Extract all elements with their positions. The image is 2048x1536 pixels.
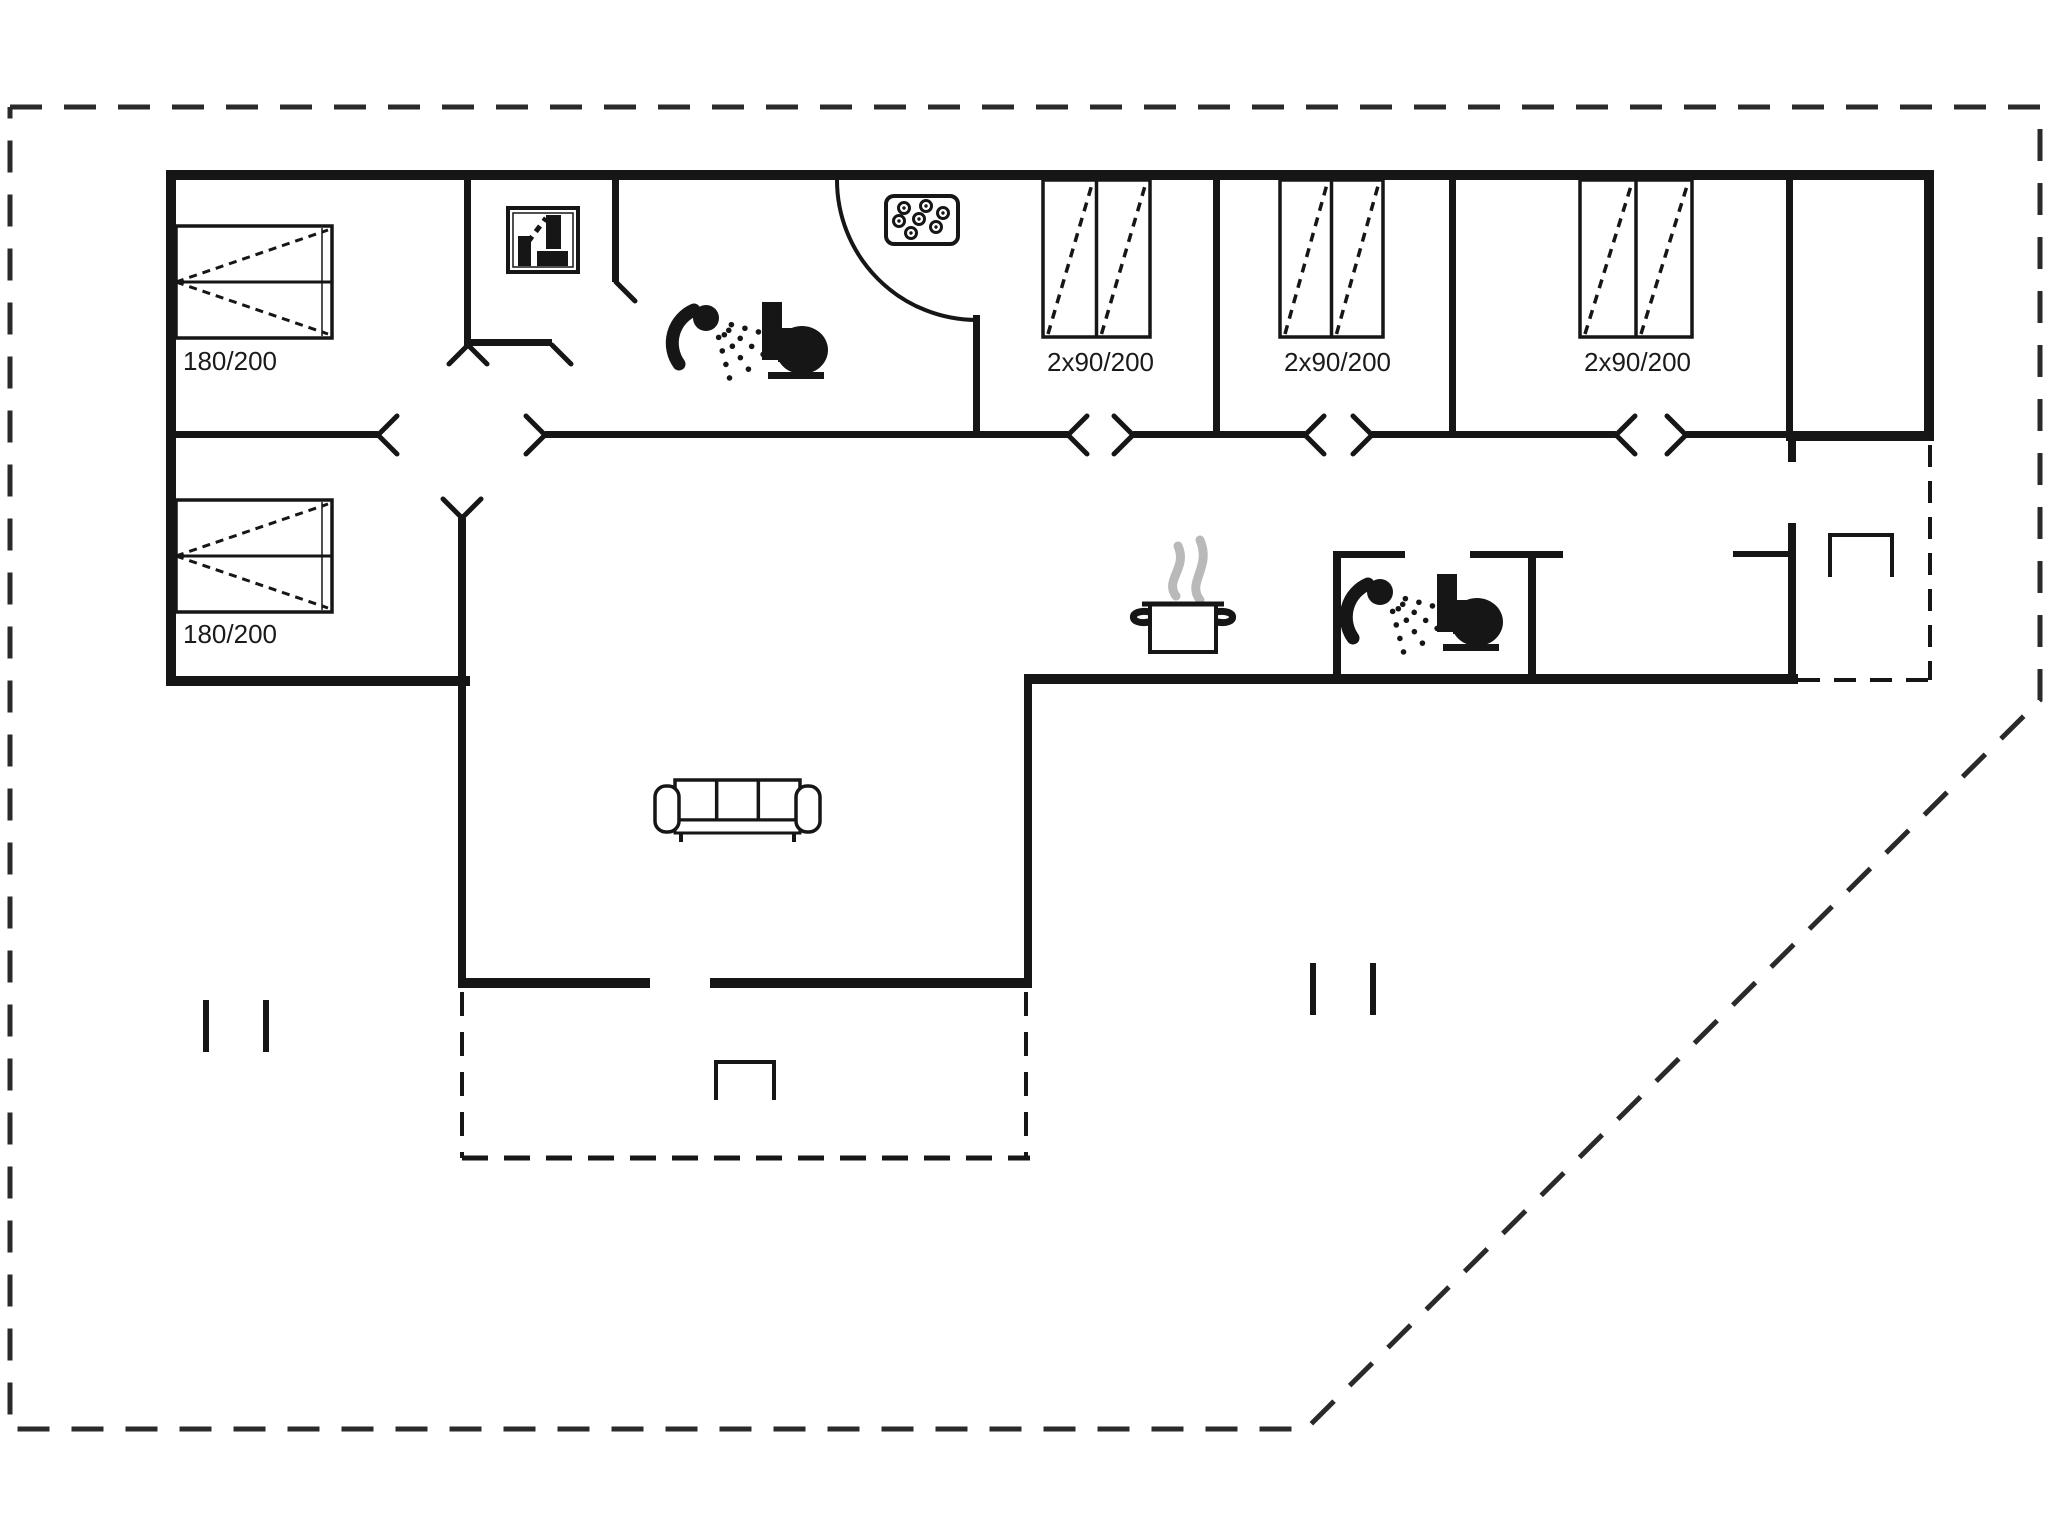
shower-spray-dot [716,335,722,341]
wall [1024,683,1032,988]
shower-spray-dot [1403,596,1409,602]
shower-spray-dot [1412,629,1418,635]
bed-diagonal [176,504,328,556]
door-opening-tick [462,499,481,518]
shower-spray-dot [730,343,736,349]
wall [710,978,1032,988]
shower-spray-dot [1396,606,1402,612]
door-opening-tick [1068,416,1087,435]
wall [1449,180,1456,438]
shower-head [1367,579,1393,605]
wardrobe-door-diagonal [1337,186,1379,334]
whirlpool-bubble-dot [897,219,900,222]
door-opening-tick [443,499,462,518]
shower-spray-dot [723,362,729,368]
wall [1786,180,1793,438]
shower-spray-dot [746,366,752,372]
cooking-pot-icon [1133,540,1232,652]
door-opening-tick [1667,435,1686,454]
sofa-arm [655,786,679,832]
shower-spray-dot [1420,640,1426,646]
shower-spray-dot [742,325,748,331]
wall [458,518,466,988]
washer-detail [528,218,546,242]
shower-spray-dot [1416,599,1422,605]
shower-spray-dot [726,328,732,334]
steam [1196,540,1204,600]
wardrobe-icon: 2x90/200 [1043,180,1154,377]
toilet-bowl [776,326,828,374]
door-opening-tick [449,345,468,364]
shower-icon [672,305,774,381]
door-opening-tick [526,416,545,435]
whirlpool-icon [886,196,958,244]
wall [1924,170,1934,441]
shower-spray-dot [1430,603,1436,609]
door-opening-tick [1667,416,1686,435]
whirlpool-bubble-dot [924,204,927,207]
step-symbol [716,1062,774,1100]
wall [1788,523,1796,684]
pot-handle [1133,611,1150,622]
wall [1133,431,1305,438]
bed-size-label: 180/200 [183,346,277,376]
door-opening-tick [526,435,545,454]
toilet-icon [762,302,828,379]
shower-head [693,305,719,331]
shower-spray-dot [1393,622,1399,628]
toilet-base [768,372,824,379]
shower-spray-dot [756,329,762,335]
wardrobe-door-diagonal [1585,186,1631,334]
wall [1786,431,1934,441]
wall [1213,180,1220,438]
shower-spray-dot [727,375,733,381]
whirlpool-bubble-dot [909,231,912,234]
door-opening-tick [1305,416,1324,435]
wall [612,180,619,282]
shower-spray-dot [738,355,744,361]
shower-spray-dot [737,336,743,342]
wall [1686,431,1790,438]
toilet-base [1443,644,1499,651]
wall [545,431,1068,438]
sofa-back [675,780,800,820]
wall [1528,552,1536,684]
floor-plan-page: 180/200180/2002x90/2002x90/2002x90/200 [0,0,2048,1536]
door-opening-tick [1305,435,1324,454]
door-opening-tick [1353,416,1372,435]
sofa-icon [655,780,820,842]
bed-diagonal [176,556,328,608]
bed-diagonal [176,230,328,282]
washer-detail [546,215,561,249]
wardrobe-size-label: 2x90/200 [1047,347,1154,377]
door-opening-tick [616,282,635,301]
shower-icon [1346,579,1448,655]
shower-arm [1346,584,1368,638]
steam [1173,546,1181,596]
bed-size-label: 180/200 [183,619,277,649]
door-opening-tick [378,416,397,435]
wall [1788,441,1796,462]
whirlpool-bubble-dot [934,225,937,228]
shower-spray-dot [1404,617,1410,623]
whirlpool-bubble-dot [902,206,905,209]
shower-arm [672,310,694,364]
wardrobe-door-diagonal [1285,186,1327,334]
wardrobe-size-label: 2x90/200 [1284,347,1391,377]
toilet-bowl [1451,598,1503,646]
wardrobe-door-diagonal [1102,186,1146,334]
shower-spray-dot [729,322,735,328]
shower-spray-dot [1411,610,1417,616]
step-symbol [1830,535,1892,577]
wall [458,978,650,988]
bed-diagonal [176,282,328,334]
sofa-arm [796,786,820,832]
door-opening-tick [1114,435,1133,454]
boundary-tick-marks [1313,963,1373,1015]
floor-plan-drawing: 180/200180/2002x90/2002x90/2002x90/200 [0,0,2048,1536]
shower-spray-dot [1397,636,1403,642]
shower-spray-dot [722,332,728,338]
wall [464,180,471,345]
whirlpool-bubble-dot [917,217,920,220]
wardrobe-door-diagonal [1048,186,1092,334]
door-opening-tick [552,345,571,364]
shower-spray-dot [1400,602,1406,608]
double-bed-icon: 180/200 [176,226,332,376]
door-opening-tick [1114,416,1133,435]
wall [166,676,470,686]
double-bed-icon: 180/200 [176,500,332,649]
wall [166,431,378,438]
pot-body [1150,604,1216,652]
wall [973,315,980,438]
shower-spray-dot [1401,649,1407,655]
washer-detail [537,251,568,266]
sofa-seat [675,820,800,833]
wardrobe-door-diagonal [1641,186,1687,334]
shower-spray-dot [719,348,725,354]
wardrobe-icon: 2x90/200 [1580,180,1692,377]
toilet-icon [1437,574,1503,651]
wall [464,339,552,346]
shower-spray-dot [1390,609,1396,615]
whirlpool-bubble-dot [941,211,944,214]
pot-handle [1216,611,1233,622]
wall [1024,674,1798,684]
boundary-tick-marks [206,1000,266,1052]
door-opening-tick [1353,435,1372,454]
wardrobe-size-label: 2x90/200 [1584,347,1691,377]
door-opening-tick [1068,435,1087,454]
washing-machine-icon [508,208,578,272]
wall [1470,551,1563,558]
shower-spray-dot [749,344,755,350]
wall [1333,551,1405,558]
door-opening-tick [378,435,397,454]
shower-spray-dot [1423,618,1429,624]
wardrobe-icon: 2x90/200 [1280,180,1391,377]
wall [1733,551,1790,557]
door-opening-tick [1616,416,1635,435]
door-opening-tick [1616,435,1635,454]
wall [1372,431,1616,438]
door-opening-tick [468,345,487,364]
